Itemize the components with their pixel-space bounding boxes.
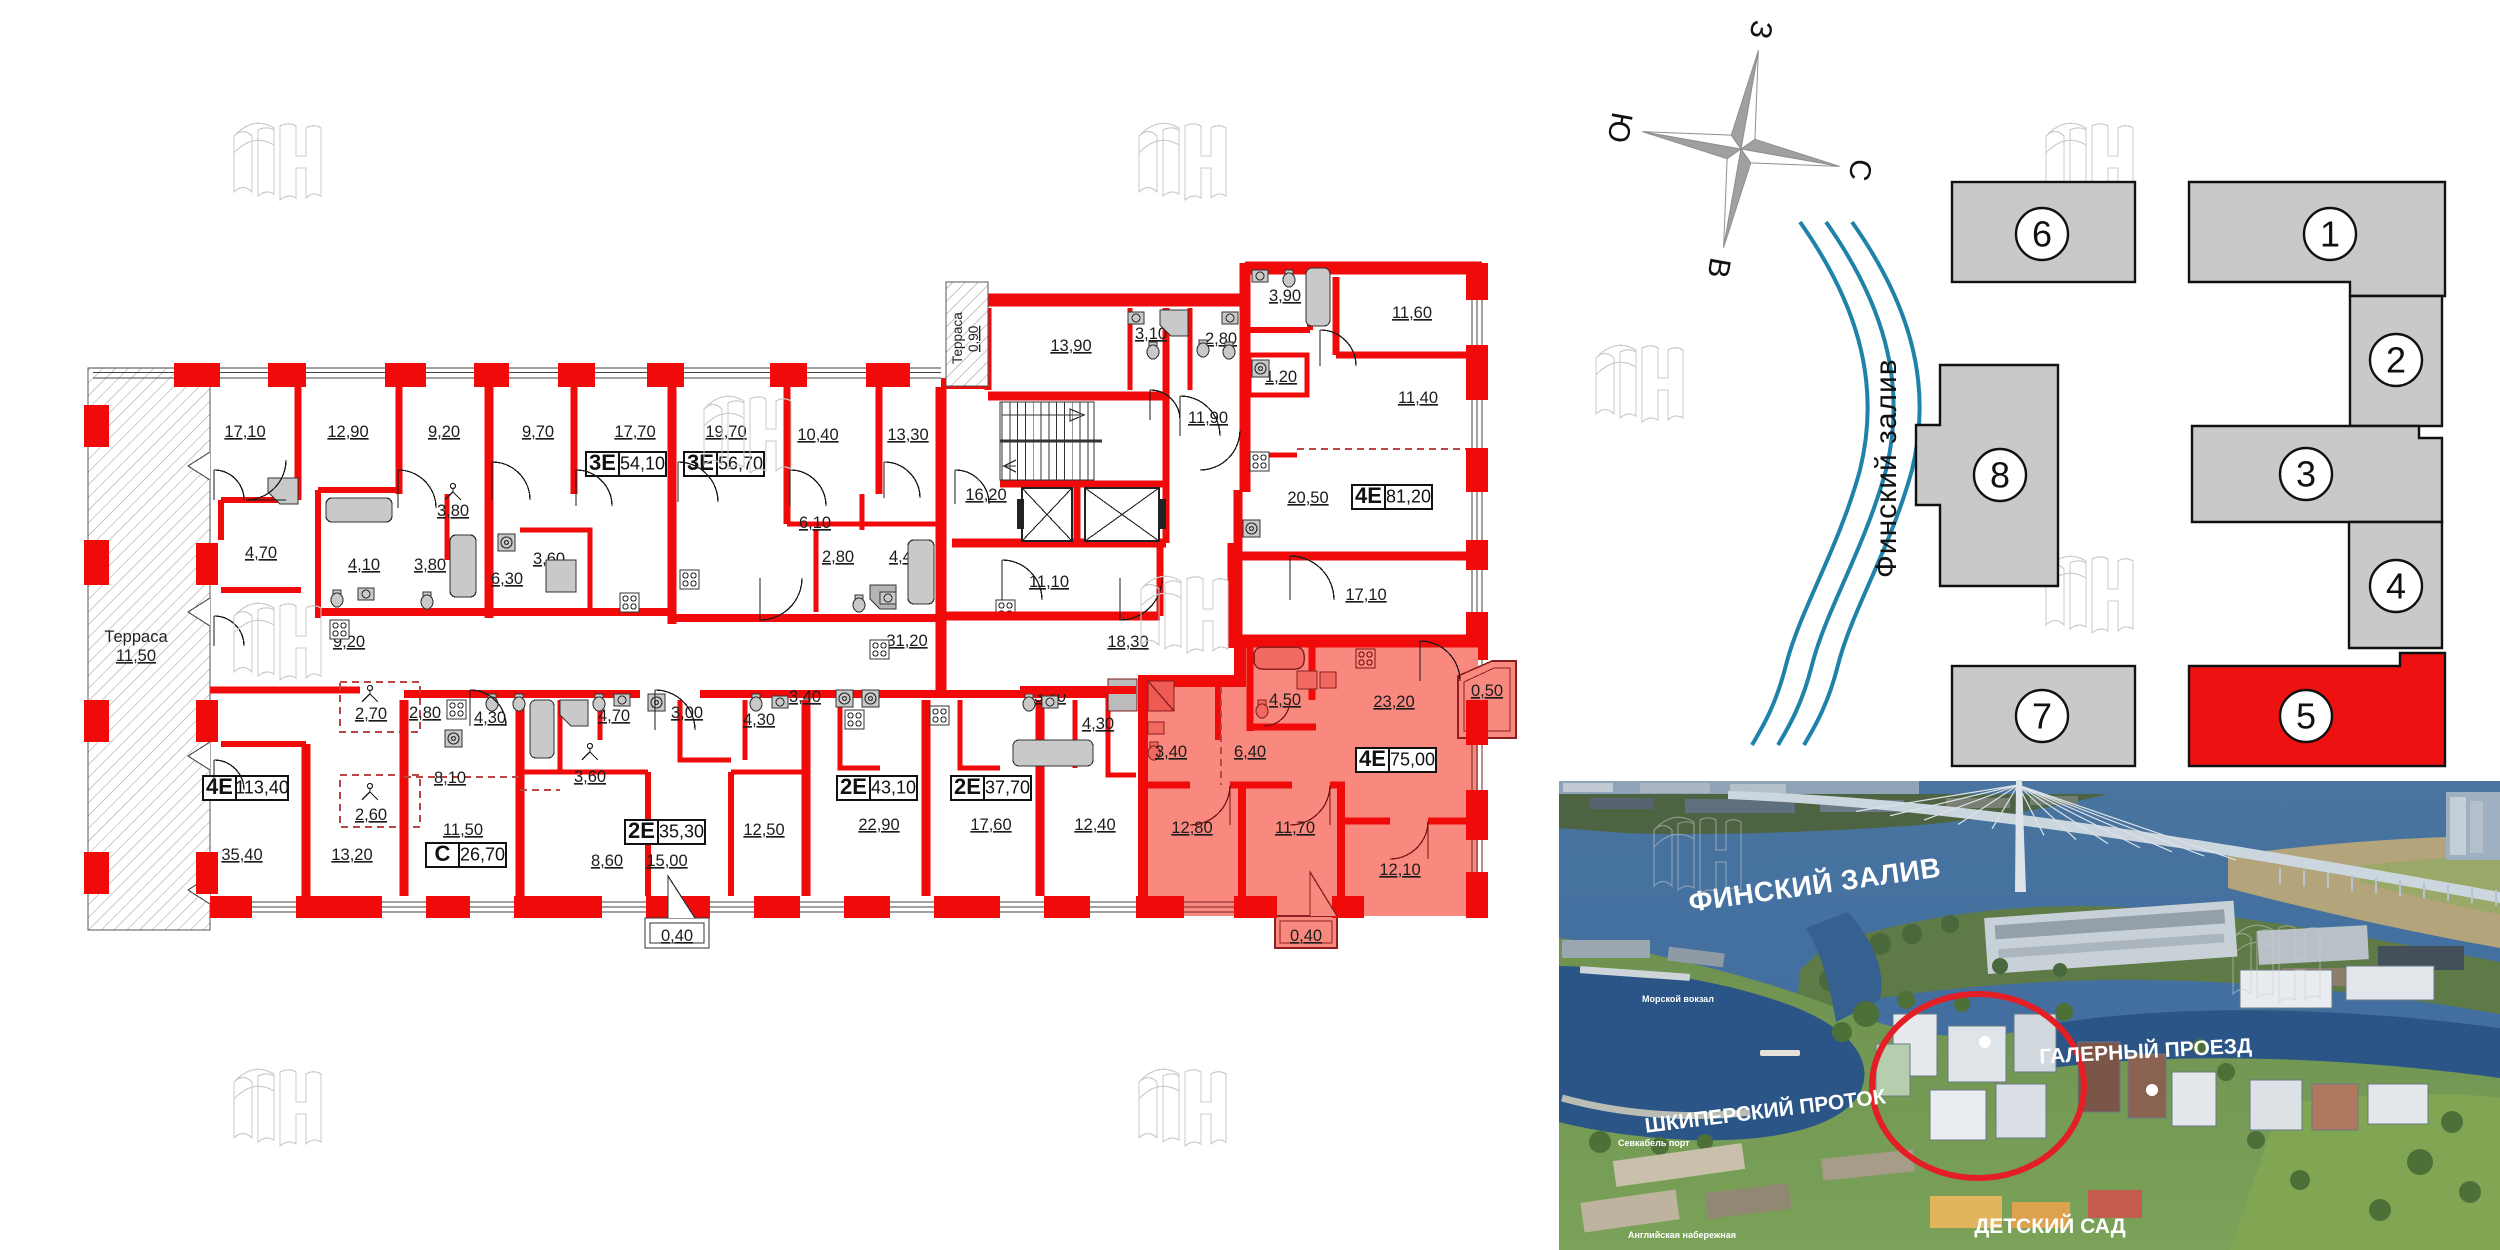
svg-text:12,50: 12,50 <box>743 821 784 839</box>
svg-text:11,90: 11,90 <box>1188 409 1228 427</box>
svg-text:8,60: 8,60 <box>591 852 623 870</box>
svg-text:35,40: 35,40 <box>221 846 262 864</box>
svg-text:2,60: 2,60 <box>355 806 387 824</box>
svg-text:31,20: 31,20 <box>886 632 927 650</box>
svg-text:4,70: 4,70 <box>245 544 277 562</box>
svg-text:11,40: 11,40 <box>1398 389 1438 407</box>
svg-text:2,80: 2,80 <box>822 548 854 566</box>
svg-text:Английская набережная: Английская набережная <box>1628 1230 1736 1240</box>
svg-text:4: 4 <box>2386 566 2406 607</box>
svg-text:15,00: 15,00 <box>646 852 687 870</box>
svg-text:17,70: 17,70 <box>614 423 655 441</box>
svg-text:1,20: 1,20 <box>1265 368 1297 386</box>
svg-text:10,40: 10,40 <box>797 426 838 444</box>
svg-text:2: 2 <box>2386 340 2406 381</box>
svg-text:3,40: 3,40 <box>789 688 821 706</box>
svg-text:11,50: 11,50 <box>116 647 156 665</box>
svg-text:В: В <box>1701 255 1737 280</box>
svg-text:2,80: 2,80 <box>409 704 441 722</box>
svg-text:17,10: 17,10 <box>1345 586 1386 604</box>
svg-text:3,90: 3,90 <box>1269 287 1301 305</box>
svg-text:6,40: 6,40 <box>1234 743 1266 761</box>
svg-text:0,40: 0,40 <box>661 927 693 945</box>
svg-text:8,10: 8,10 <box>434 769 466 787</box>
svg-text:2Е: 2Е <box>954 774 981 799</box>
svg-text:2,70: 2,70 <box>355 705 387 723</box>
svg-text:19,70: 19,70 <box>705 423 746 441</box>
svg-text:9,70: 9,70 <box>522 423 554 441</box>
svg-text:3Е: 3Е <box>687 450 714 475</box>
svg-text:2Е: 2Е <box>628 818 655 843</box>
svg-text:3,60: 3,60 <box>574 768 606 786</box>
svg-text:11,60: 11,60 <box>1392 304 1432 322</box>
svg-text:Ю: Ю <box>1600 110 1638 146</box>
svg-text:8: 8 <box>1990 455 2010 496</box>
svg-text:54,10: 54,10 <box>620 454 665 474</box>
svg-text:Терраса: Терраса <box>950 312 965 364</box>
svg-text:12,10: 12,10 <box>1379 861 1420 879</box>
svg-text:11,10: 11,10 <box>1029 573 1069 591</box>
svg-text:2Е: 2Е <box>840 774 867 799</box>
svg-text:11,50: 11,50 <box>443 821 483 839</box>
svg-text:35,30: 35,30 <box>659 822 704 842</box>
svg-text:3,40: 3,40 <box>1155 743 1187 761</box>
svg-text:20,50: 20,50 <box>1287 489 1328 507</box>
svg-text:6,10: 6,10 <box>799 514 831 532</box>
svg-text:0,90: 0,90 <box>966 326 981 352</box>
svg-text:3Е: 3Е <box>589 450 616 475</box>
svg-text:Морской вокзал: Морской вокзал <box>1642 994 1714 1004</box>
svg-text:81,20: 81,20 <box>1386 487 1431 507</box>
svg-text:7: 7 <box>2032 696 2052 737</box>
svg-text:37,70: 37,70 <box>985 778 1030 798</box>
svg-text:23,20: 23,20 <box>1373 693 1414 711</box>
svg-text:17,60: 17,60 <box>970 816 1011 834</box>
svg-text:75,00: 75,00 <box>1390 750 1435 770</box>
svg-text:12,40: 12,40 <box>1074 816 1115 834</box>
svg-text:3,80: 3,80 <box>437 502 469 520</box>
svg-text:13,20: 13,20 <box>331 846 372 864</box>
svg-text:17,10: 17,10 <box>224 423 265 441</box>
svg-text:3,80: 3,80 <box>414 556 446 574</box>
svg-text:Севкабель порт: Севкабель порт <box>1618 1138 1690 1148</box>
svg-text:4,50: 4,50 <box>1269 691 1301 709</box>
svg-text:С: С <box>1842 156 1878 183</box>
svg-text:3: 3 <box>2296 454 2316 495</box>
svg-text:ДЕТСКИЙ САД: ДЕТСКИЙ САД <box>1974 1214 2125 1238</box>
svg-text:4Е: 4Е <box>206 774 233 799</box>
svg-text:Финский залив: Финский залив <box>1870 358 1903 578</box>
svg-text:9,20: 9,20 <box>428 423 460 441</box>
svg-text:6,30: 6,30 <box>491 570 523 588</box>
svg-text:З: З <box>1743 18 1779 42</box>
svg-text:С: С <box>435 841 451 866</box>
svg-text:1: 1 <box>2320 214 2340 255</box>
svg-text:4Е: 4Е <box>1355 483 1382 508</box>
svg-text:0,40: 0,40 <box>1290 927 1322 945</box>
svg-text:22,90: 22,90 <box>858 816 899 834</box>
svg-text:43,10: 43,10 <box>871 778 916 798</box>
svg-text:13,30: 13,30 <box>887 426 928 444</box>
svg-text:11,70: 11,70 <box>1275 819 1315 837</box>
svg-text:Терраса: Терраса <box>104 628 168 646</box>
svg-text:4,30: 4,30 <box>743 711 775 729</box>
svg-text:4,30: 4,30 <box>1082 715 1114 733</box>
svg-text:12,90: 12,90 <box>327 423 368 441</box>
svg-text:4Е: 4Е <box>1359 746 1386 771</box>
svg-text:0,50: 0,50 <box>1471 682 1503 700</box>
svg-text:18,30: 18,30 <box>1107 633 1148 651</box>
svg-text:56,70: 56,70 <box>718 454 763 474</box>
svg-text:4,30: 4,30 <box>474 709 506 727</box>
svg-text:6: 6 <box>2032 214 2052 255</box>
svg-text:26,70: 26,70 <box>460 845 505 865</box>
svg-text:5: 5 <box>2296 696 2316 737</box>
svg-text:13,90: 13,90 <box>1050 337 1091 355</box>
svg-text:4,10: 4,10 <box>348 556 380 574</box>
